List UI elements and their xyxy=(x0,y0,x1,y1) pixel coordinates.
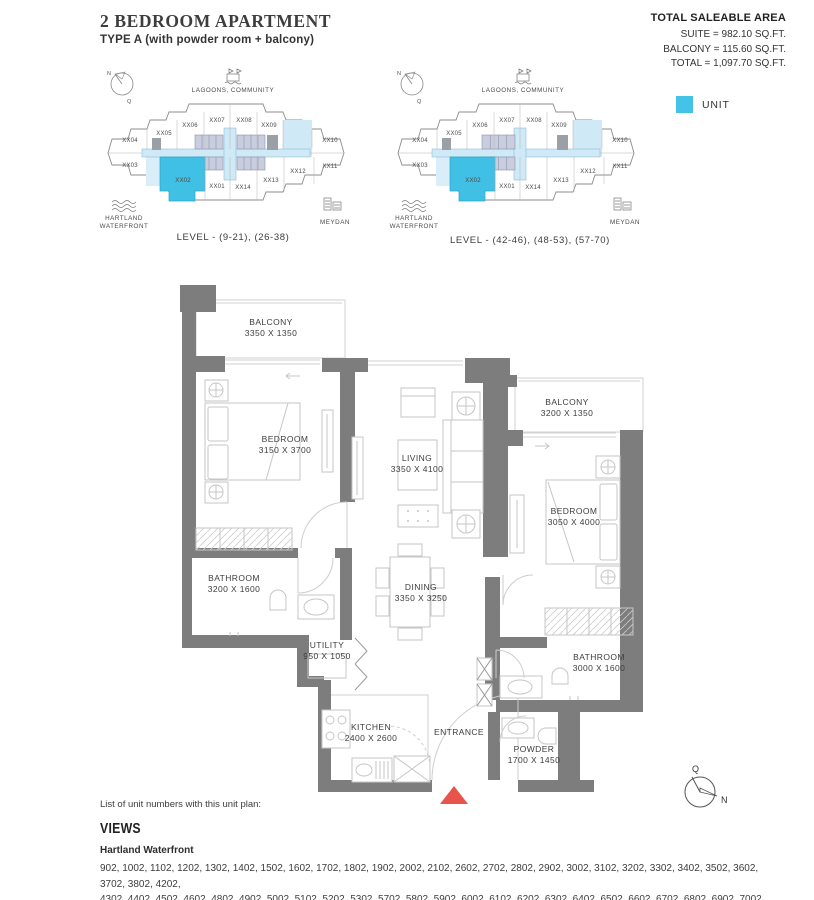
pale-unit-strip xyxy=(436,157,450,186)
unit-label: XX12 xyxy=(290,169,306,175)
unit-label: XX03 xyxy=(122,163,138,169)
room-dims: 3350 X 1350 xyxy=(245,328,298,338)
unit-label: XX01 xyxy=(209,184,225,190)
unit-label: XX11 xyxy=(322,164,337,170)
area-suite: SUITE = 982.10 SQ.FT. xyxy=(651,28,786,43)
compass-icon: N Q xyxy=(107,71,133,105)
unit-label: XX10 xyxy=(322,138,338,144)
bathroom-fixtures-icon xyxy=(230,558,334,636)
page-title: 2 BEDROOM APARTMENT xyxy=(100,11,331,32)
unit-label: XX03 xyxy=(412,163,428,169)
wardrobe2-icon xyxy=(545,608,633,635)
compass-n-label: N xyxy=(397,71,401,77)
compass-q-label: Q xyxy=(127,99,132,105)
unit-label: XX14 xyxy=(235,185,251,191)
room-dims: 3150 X 3700 xyxy=(259,445,312,455)
lagoons-label: LAGOONS, COMMUNITY xyxy=(192,87,275,94)
waves-icon xyxy=(402,201,426,212)
room-label: BALCONY xyxy=(249,317,292,327)
unit-label: XX13 xyxy=(553,178,569,184)
unit-label: XX08 xyxy=(526,118,542,124)
compass-n-label: N xyxy=(721,795,728,805)
unit-legend-swatch xyxy=(676,96,693,113)
lagoons-label: LAGOONS, COMMUNITY xyxy=(482,87,565,94)
key-plan-caption-2: LEVEL - (42-46), (48-53), (57-70) xyxy=(400,235,660,246)
compass-q-label: Q xyxy=(692,764,699,774)
key-plan-high-levels: XX04XX05XX06XX07XX08XX09XX10XX03XX02XX01… xyxy=(378,58,658,243)
unit-label: XX04 xyxy=(122,138,138,144)
page-subtitle: TYPE A (with powder room + balcony) xyxy=(100,34,314,46)
unit-label: XX02 xyxy=(465,178,481,184)
unit-label: XX09 xyxy=(551,123,567,129)
unit-label: XX09 xyxy=(261,123,277,129)
dining-table-icon xyxy=(376,544,444,640)
room-dims: 1700 X 1450 xyxy=(508,755,561,765)
key-plan-low-levels: XX04XX05XX06XX07XX08XX09XX10XX03XX02XX01… xyxy=(88,58,368,243)
door-arc xyxy=(503,575,533,605)
core-gray xyxy=(267,135,278,150)
room-label: BEDROOM xyxy=(551,506,598,516)
hartland-label: WATERFRONT xyxy=(100,223,149,230)
room-label: LIVING xyxy=(402,453,432,463)
unit-label: XX01 xyxy=(499,184,515,190)
room-label: KITCHEN xyxy=(351,722,391,732)
unit-label: XX13 xyxy=(263,178,279,184)
compass-icon: N Q xyxy=(397,71,423,105)
view-name: Hartland Waterfront xyxy=(100,845,194,856)
buildings-icon xyxy=(324,198,341,210)
unit-label: XX04 xyxy=(412,138,428,144)
sofa-icon xyxy=(398,388,483,538)
buildings-icon xyxy=(614,198,631,210)
unit-label: XX14 xyxy=(525,185,541,191)
room-label: ENTRANCE xyxy=(434,727,484,737)
unit-label: XX06 xyxy=(182,123,198,129)
room-label: BEDROOM xyxy=(262,434,309,444)
room-dims: 3350 X 4100 xyxy=(391,464,444,474)
room-dims: 3350 X 3250 xyxy=(395,593,448,603)
hartland-label: WATERFRONT xyxy=(390,223,439,230)
unit-label: XX10 xyxy=(612,138,628,144)
area-summary: TOTAL SALEABLE AREA SUITE = 982.10 SQ.FT… xyxy=(651,12,786,72)
unit-list-label: List of unit numbers with this unit plan… xyxy=(100,799,261,810)
unit-numbers-list: 902, 1002, 1102, 1202, 1302, 1402, 1502,… xyxy=(100,861,772,900)
pale-unit-strip xyxy=(146,157,160,186)
waves-icon xyxy=(112,201,136,212)
room-label: BATHROOM xyxy=(208,573,260,583)
wardrobe-icon xyxy=(196,528,292,550)
core-gray xyxy=(152,138,161,150)
unit-label: XX02 xyxy=(175,178,191,184)
powder-fixtures-icon xyxy=(500,716,556,744)
unit-legend: UNIT xyxy=(676,96,730,113)
unit-numbers-line: 902, 1002, 1102, 1202, 1302, 1402, 1502,… xyxy=(100,861,772,892)
room-label: BALCONY xyxy=(545,397,588,407)
room-label: POWDER xyxy=(514,744,555,754)
core-gray xyxy=(557,135,568,150)
room-dims: 950 X 1050 xyxy=(303,651,350,661)
lagoons-icon xyxy=(225,69,241,84)
unit-label: XX05 xyxy=(156,131,172,137)
room-label: DINING xyxy=(405,582,437,592)
room-dims: 3200 X 1350 xyxy=(541,408,594,418)
lagoons-icon xyxy=(515,69,531,84)
hartland-label: HARTLAND xyxy=(395,215,433,222)
entrance-marker-icon xyxy=(440,786,468,804)
room-dims: 3050 X 4000 xyxy=(548,517,601,527)
meydan-label: MEYDAN xyxy=(320,219,350,226)
room-label: UTILITY xyxy=(310,640,344,650)
unit-label: XX08 xyxy=(236,118,252,124)
compass-n-label: N xyxy=(107,71,111,77)
unit-label: XX07 xyxy=(499,118,515,124)
room-dims: 2400 X 2600 xyxy=(345,733,398,743)
room-label: BATHROOM xyxy=(573,652,625,662)
door-arc xyxy=(301,502,347,548)
floor-plan: BALCONY 3350 X 1350 BEDROOM 3150 X 3700 … xyxy=(130,280,710,815)
key-plan-caption-1: LEVEL - (9-21), (26-38) xyxy=(103,232,363,243)
bathroom2-fixtures-icon xyxy=(496,650,578,700)
views-heading: VIEWS xyxy=(100,820,141,837)
unit-label: XX12 xyxy=(580,169,596,175)
room-dims: 3000 X 1600 xyxy=(573,663,626,673)
unit-legend-label: UNIT xyxy=(702,99,730,111)
area-balcony: BALCONY = 115.60 SQ.FT. xyxy=(651,43,786,58)
area-summary-heading: TOTAL SALEABLE AREA xyxy=(651,12,786,24)
core-gray xyxy=(442,138,451,150)
area-total: TOTAL = 1,097.70 SQ.FT. xyxy=(651,57,786,72)
unit-label: XX05 xyxy=(446,131,462,137)
page: 2 BEDROOM APARTMENT TYPE A (with powder … xyxy=(0,0,814,900)
unit-label: XX11 xyxy=(612,164,627,170)
hartland-label: HARTLAND xyxy=(105,215,143,222)
unit-numbers-line: 4302, 4402, 4502, 4602, 4802, 4902, 5002… xyxy=(100,892,772,900)
compass-q-label: Q xyxy=(417,99,422,105)
unit-label: XX07 xyxy=(209,118,225,124)
compass-icon: Q N xyxy=(668,756,748,826)
meydan-label: MEYDAN xyxy=(610,219,640,226)
unit-label: XX06 xyxy=(472,123,488,129)
room-dims: 3200 X 1600 xyxy=(208,584,261,594)
